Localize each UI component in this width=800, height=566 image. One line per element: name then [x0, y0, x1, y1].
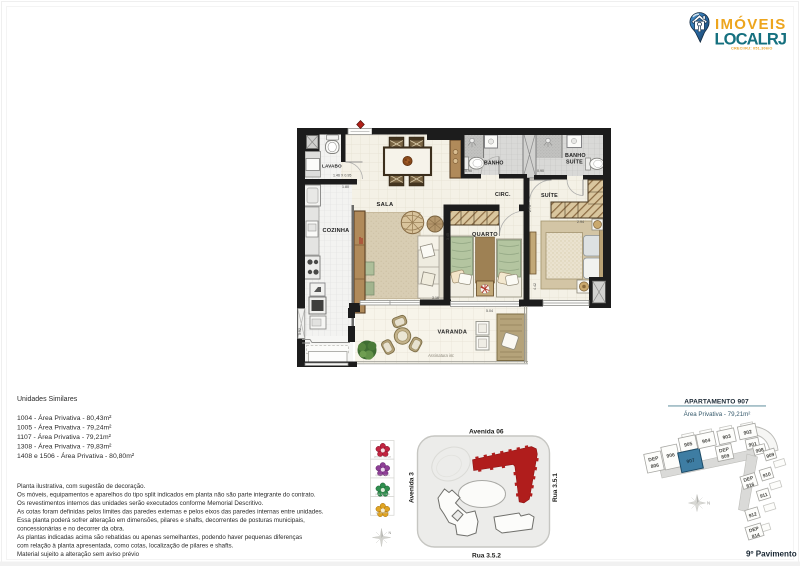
svg-text:BANHO: BANHO	[484, 161, 504, 167]
svg-text:APARTAMENTO 907: APARTAMENTO 907	[684, 398, 749, 405]
svg-text:Avenida 3: Avenida 3	[409, 472, 416, 503]
svg-text:3.16: 3.16	[432, 296, 439, 300]
svg-text:2.70: 2.70	[528, 205, 532, 212]
svg-text:1005 - Área Privativa - 79,24m: 1005 - Área Privativa - 79,24m²	[17, 423, 112, 432]
svg-text:Material sujeito a alteração s: Material sujeito a alteração sem aviso p…	[17, 551, 140, 558]
svg-text:jasmim manga: jasmim manga	[373, 455, 391, 459]
svg-text:1.46 X 0.95: 1.46 X 0.95	[333, 174, 351, 178]
svg-text:com relação à planta apresenta: com relação à planta apresentada, como c…	[17, 543, 234, 550]
svg-text:Rua 3.5.1: Rua 3.5.1	[552, 473, 559, 502]
svg-text:As plantas indicadas acima são: As plantas indicadas acima são rebatidas…	[17, 534, 302, 541]
svg-text:VARANDA: VARANDA	[438, 330, 468, 336]
svg-text:concessionárias e no decorrer: concessionárias e no decorrer da obra.	[17, 526, 125, 533]
svg-text:As cotas foram definidas pelos: As cotas foram definidas pelos limites d…	[17, 509, 324, 516]
svg-text:SALA: SALA	[377, 202, 394, 208]
svg-text:COZINHA: COZINHA	[323, 228, 350, 234]
svg-text:LAVABO: LAVABO	[322, 164, 342, 169]
svg-text:1308 - Área Privativa - 79,83m: 1308 - Área Privativa - 79,83m²	[17, 442, 112, 451]
svg-text:SUÍTE: SUÍTE	[566, 158, 583, 166]
svg-text:QUARTO: QUARTO	[472, 232, 498, 238]
svg-text:SUÍTE: SUÍTE	[541, 191, 558, 199]
svg-text:Essa planta poderá sofrer alte: Essa planta poderá sofrer alteração em d…	[17, 517, 305, 524]
svg-text:CIRC.: CIRC.	[495, 192, 511, 198]
svg-text:CRECI/RJ: 051.306/O: CRECI/RJ: 051.306/O	[731, 47, 773, 51]
svg-text:5.52: 5.52	[298, 328, 302, 335]
svg-text:9º Pavimento: 9º Pavimento	[746, 550, 797, 559]
svg-text:quaresmeira: quaresmeira	[375, 473, 390, 477]
svg-text:Rua 3.5.2: Rua 3.5.2	[472, 553, 501, 560]
svg-text:Avenida 06: Avenida 06	[469, 429, 504, 436]
svg-text:Planta ilustrativa, com sugest: Planta ilustrativa, com sugestão de deco…	[17, 483, 146, 490]
svg-text:1408 e 1506 - Área Privativa -: 1408 e 1506 - Área Privativa - 80,80m²	[17, 451, 135, 460]
svg-text:BANHO: BANHO	[565, 153, 586, 159]
svg-text:0.90: 0.90	[465, 169, 472, 173]
svg-text:ipê amarelo: ipê amarelo	[376, 511, 390, 515]
svg-text:1004 - Área Privativa - 80,43m: 1004 - Área Privativa - 80,43m²	[17, 413, 112, 422]
svg-text:Unidades Similares: Unidades Similares	[17, 396, 78, 403]
svg-text:5.04: 5.04	[486, 309, 493, 313]
svg-text:N: N	[707, 501, 710, 506]
svg-text:3.45: 3.45	[446, 233, 450, 240]
svg-text:2.94: 2.94	[577, 220, 584, 224]
svg-text:pata de vaca: pata de vaca	[375, 492, 390, 496]
svg-text:0.90: 0.90	[537, 169, 544, 173]
svg-text:Área Privativa - 79,21m²: Área Privativa - 79,21m²	[684, 411, 751, 418]
svg-text:Assinatura int.: Assinatura int.	[427, 353, 455, 358]
svg-text:4.42: 4.42	[533, 283, 537, 290]
svg-text:1.80: 1.80	[342, 185, 349, 189]
svg-text:1107 - Área Privativa - 79,21m: 1107 - Área Privativa - 79,21m²	[17, 432, 112, 441]
svg-text:Os revestimentos internos das: Os revestimentos internos das unidades s…	[17, 500, 264, 507]
svg-text:N: N	[389, 531, 392, 535]
svg-text:Os móveis, equipamentos e apar: Os móveis, equipamentos e aparelhos do t…	[17, 492, 316, 499]
